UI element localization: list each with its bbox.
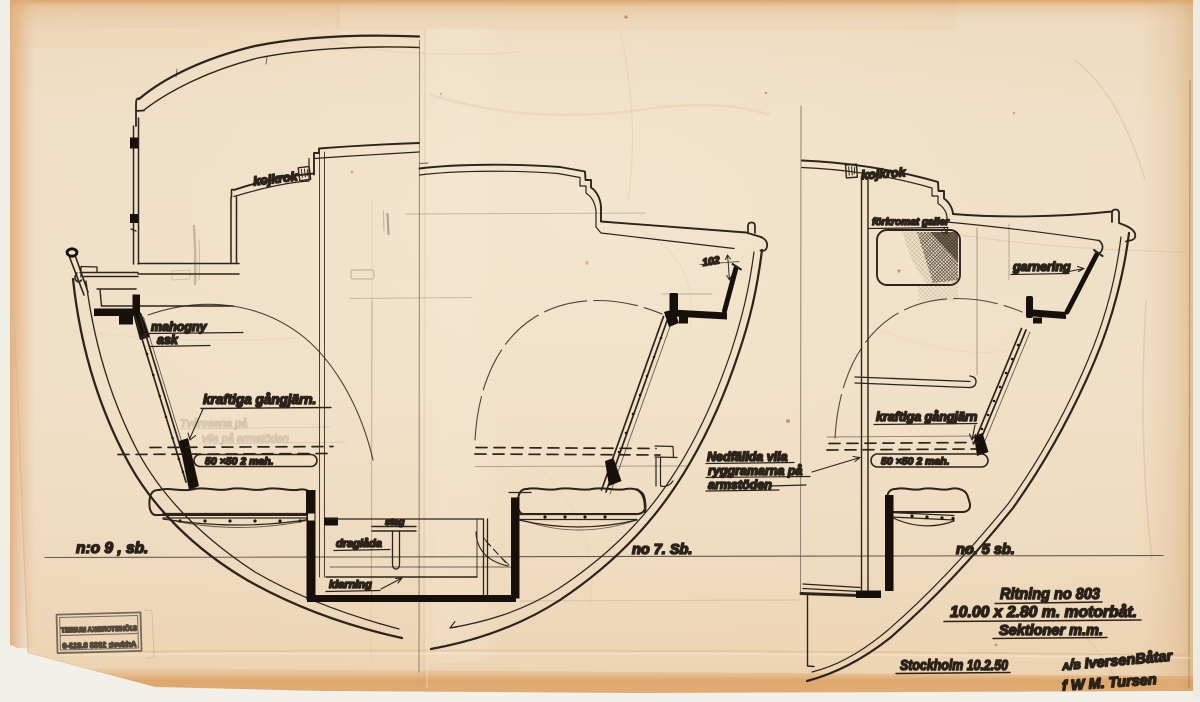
svg-text:Stockholm 10.2.50: Stockholm 10.2.50 xyxy=(900,657,1009,674)
svg-text:kraftiga gångjärn: kraftiga gångjärn xyxy=(876,410,978,424)
svg-text:10.00 x 2.80 m. motorbåt.: 10.00 x 2.80 m. motorbåt. xyxy=(950,603,1137,621)
svg-text:Ritning no 803: Ritning no 803 xyxy=(1000,586,1100,603)
svg-text:klarning: klarning xyxy=(329,579,372,591)
svg-text:ryggramarna på: ryggramarna på xyxy=(708,464,803,478)
svg-text:Nedfällda vila: Nedfällda vila xyxy=(707,450,788,464)
svg-text:steg: steg xyxy=(385,517,405,528)
svg-text:garnering: garnering xyxy=(1012,260,1071,274)
svg-text:förkromat galler: förkromat galler xyxy=(872,216,950,228)
svg-text:50 ×50 2 mah.: 50 ×50 2 mah. xyxy=(881,456,950,468)
svg-text:Sektioner m.m.: Sektioner m.m. xyxy=(999,622,1103,639)
svg-text:draglåda: draglåda xyxy=(336,538,382,550)
svg-text:50 ×50 2 mah.: 50 ×50 2 mah. xyxy=(205,456,274,468)
svg-text:mahogny: mahogny xyxy=(151,320,208,334)
svg-text:n:o 9 , sb.: n:o 9 , sb. xyxy=(76,540,148,557)
svg-text:kraftiga gångjärn.: kraftiga gångjärn. xyxy=(203,392,316,407)
svg-text:no 7. Sb.: no 7. Sb. xyxy=(632,542,692,558)
svg-text:ask: ask xyxy=(157,333,179,347)
svg-text:no. 5 sb.: no. 5 sb. xyxy=(956,542,1015,558)
